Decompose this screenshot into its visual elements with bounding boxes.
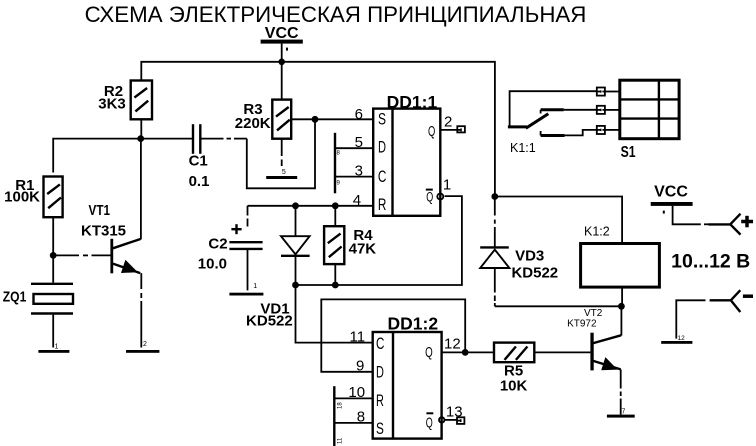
svg-text:Q: Q xyxy=(426,190,433,205)
svg-text:D: D xyxy=(376,362,384,381)
svg-text:VCC: VCC xyxy=(654,183,688,200)
svg-text:10.0: 10.0 xyxy=(198,255,227,272)
svg-text:220K: 220K xyxy=(235,115,271,132)
svg-text:D: D xyxy=(378,138,386,157)
svg-text:C: C xyxy=(378,167,387,186)
svg-text:3K3: 3K3 xyxy=(98,96,126,113)
svg-text:10...12 В: 10...12 В xyxy=(671,250,750,272)
svg-text:Q: Q xyxy=(426,415,433,432)
svg-text:C1: C1 xyxy=(189,153,208,170)
svg-text:10K: 10K xyxy=(500,378,528,395)
svg-text:100K: 100K xyxy=(4,189,40,206)
svg-text:KD522: KD522 xyxy=(511,265,558,282)
svg-text:СХЕМА ЭЛЕКТРИЧЕСКАЯ ПРИНЦИПИАЛ: СХЕМА ЭЛЕКТРИЧЕСКАЯ ПРИНЦИПИАЛЬНАЯ xyxy=(85,2,587,27)
svg-text:KT972: KT972 xyxy=(567,319,597,330)
svg-text:K1:1: K1:1 xyxy=(510,141,536,155)
svg-text:18: 18 xyxy=(338,402,344,409)
svg-text:1: 1 xyxy=(55,344,59,351)
svg-text:1: 1 xyxy=(443,177,451,194)
svg-text:ZQ1: ZQ1 xyxy=(3,289,27,306)
svg-text:S: S xyxy=(376,419,384,438)
svg-text:7: 7 xyxy=(622,409,626,416)
svg-text:Q: Q xyxy=(425,344,433,361)
svg-text:DD1:2: DD1:2 xyxy=(388,313,439,333)
svg-text:KD522: KD522 xyxy=(246,312,293,329)
svg-text:4: 4 xyxy=(353,192,361,209)
svg-text:5: 5 xyxy=(282,169,286,176)
svg-text:12: 12 xyxy=(444,335,461,352)
svg-text:K1:2: K1:2 xyxy=(584,225,610,239)
svg-text:6: 6 xyxy=(355,106,363,123)
svg-text:1: 1 xyxy=(253,283,257,290)
svg-text:KT315: KT315 xyxy=(81,222,126,239)
svg-text:VCC: VCC xyxy=(265,25,299,42)
svg-text:2: 2 xyxy=(444,114,452,131)
svg-text:VT1: VT1 xyxy=(89,202,111,219)
svg-text:47K: 47K xyxy=(349,241,377,258)
svg-text:VD3: VD3 xyxy=(515,247,544,264)
svg-text:2: 2 xyxy=(143,341,147,348)
svg-text:S: S xyxy=(378,110,386,129)
svg-text:R: R xyxy=(376,391,384,410)
svg-text:Q: Q xyxy=(428,123,435,140)
svg-text:12: 12 xyxy=(678,335,686,342)
svg-text:C2: C2 xyxy=(208,236,227,253)
svg-text:11: 11 xyxy=(338,437,344,444)
svg-text:DD1:1: DD1:1 xyxy=(387,92,438,112)
svg-text:0.1: 0.1 xyxy=(189,173,210,190)
svg-text:R: R xyxy=(378,195,387,214)
svg-text:C: C xyxy=(376,334,384,353)
svg-text:S1: S1 xyxy=(621,144,636,161)
svg-text:VT2: VT2 xyxy=(584,308,603,319)
